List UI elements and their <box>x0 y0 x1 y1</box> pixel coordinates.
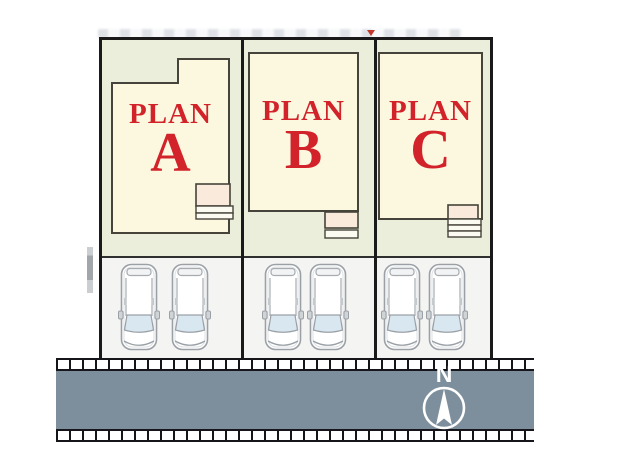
plan-c-label: PLAN C <box>379 97 482 177</box>
lot-c-yard: PLAN C <box>377 40 490 258</box>
lot-a-yard: PLAN A <box>102 40 241 258</box>
compass-needle-icon <box>436 389 452 425</box>
plan-letter: A <box>112 127 229 180</box>
plan-letter: B <box>249 124 358 177</box>
boundary-marker <box>87 247 93 293</box>
entry-steps-a <box>196 206 233 213</box>
car-icon <box>307 262 349 352</box>
car-icon <box>169 262 211 352</box>
road-edge-hatching-top <box>56 358 534 371</box>
car-icon <box>381 262 423 352</box>
car-icon <box>262 262 304 352</box>
plan-b-label: PLAN B <box>249 97 358 177</box>
porch-a <box>196 184 230 206</box>
plan-letter: C <box>379 124 482 177</box>
plan-a-label: PLAN A <box>112 100 229 180</box>
road: N <box>56 358 534 440</box>
lot-b-yard: PLAN B <box>244 40 374 258</box>
road-surface: N <box>56 371 534 429</box>
car-icon <box>426 262 468 352</box>
site-plan-canvas: PLAN A PLAN B <box>0 0 620 464</box>
car-icon <box>118 262 160 352</box>
north-label: N <box>430 361 458 388</box>
entry-steps-b <box>325 230 358 238</box>
entry-steps-c <box>448 219 481 225</box>
north-compass-icon <box>420 384 468 432</box>
porch-b <box>325 212 358 228</box>
porch-c <box>448 205 478 219</box>
